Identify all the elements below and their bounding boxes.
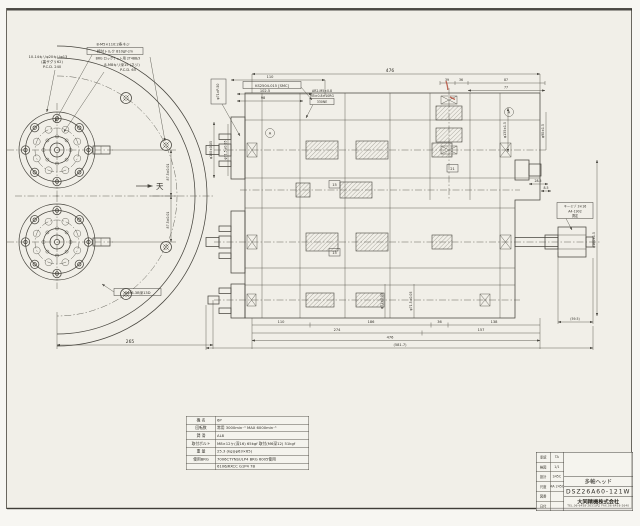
spec-label: 回転数 xyxy=(186,424,216,432)
field-value: MA 245C xyxy=(550,482,563,491)
note-pcd-line3: P.C.D. 240 xyxy=(43,65,62,69)
note-tap-line1: 8-M8キリ深15 (ネジ) xyxy=(104,62,140,67)
dim-overall-top: 476 xyxy=(386,68,395,74)
left-flange-view: 10-14キリφ20キリφ13 (裏ザグリ62) P.C.D. 240 8-M5… xyxy=(7,42,215,350)
field-value: S45C xyxy=(550,472,563,481)
engineering-drawing: .ln{fill:none;stroke:#47453e;stroke-widt… xyxy=(0,0,640,526)
dim-b1-36: 36 xyxy=(437,320,442,324)
spec-value: 常用 3000min⁻¹ MAX 6000min⁻¹ xyxy=(216,424,309,432)
dim-b4-581: (581.7) xyxy=(393,343,407,347)
field-label: 日付 xyxy=(537,501,551,510)
dim-b1-138: 138 xyxy=(491,320,499,324)
dim-77: 77 xyxy=(504,85,508,89)
title-block-fields: 承認TA 検図1/1 設計S45C 尺度MA 245C 図番 日付 xyxy=(537,453,565,511)
note-m6: 4-M6-3B深13D xyxy=(125,290,151,295)
table-row: 機 名6P xyxy=(186,416,309,424)
dim-phi160: φ160±1.5 xyxy=(592,232,596,248)
dim-phi180: φ180±0.05 xyxy=(209,141,213,159)
datum-a: A xyxy=(269,132,272,136)
dim-phi715: φ71.5±0.05 xyxy=(224,141,228,160)
field-label: 尺度 xyxy=(537,482,551,491)
note-grease-line1: AR2-M5×0.8 xyxy=(312,89,332,93)
table-row: 取付ボルトM8×12ヶ(深16) 65kgf 取付(M6深12) 51kgf xyxy=(186,440,309,448)
table-row: 回転数常用 3000min⁻¹ MAX 6000min⁻¹ xyxy=(186,424,309,432)
note-lock-line3: BRG ロックナット用 2T4BB/3 xyxy=(96,56,141,61)
spec-label xyxy=(186,463,216,470)
field-label: 検図 xyxy=(537,462,551,471)
note-grease-line2: M5×0.8×10RG xyxy=(310,94,334,98)
note-lock-line2: 締付トルク 810gf-cm xyxy=(97,49,134,54)
spec-label: 使用BRG xyxy=(186,455,216,463)
dim-b3-476: 476 xyxy=(387,335,395,339)
note-pcd-line2: (裏ザグリ62) xyxy=(41,59,63,64)
dim-110: 110 xyxy=(267,75,275,79)
drawing-number: DSZ26A60-121W xyxy=(564,487,633,498)
title-block: 承認TA 検図1/1 設計S45C 尺度MA 245C 図番 日付 多軸ヘッド … xyxy=(536,452,633,511)
field-value xyxy=(550,492,563,501)
red-pencil-mark xyxy=(446,81,455,100)
table-row: 重 量25.3 (kg)(φ63×65) xyxy=(186,448,309,456)
table-row: 潤 滑AL8 xyxy=(186,432,309,440)
gear-count-3: 15 xyxy=(332,251,337,255)
note-tap-line2: P.C.D. 65 xyxy=(120,68,136,72)
dim-phi135: φ135±1.5 xyxy=(503,122,507,138)
dim-b2-274: 274 xyxy=(334,328,342,332)
gear-clusters xyxy=(296,106,462,307)
product-name: 多軸ヘッド xyxy=(564,477,633,487)
company-tel: TEL.06-6458-2631(代) FAX.06-6458-2640 xyxy=(567,505,629,508)
field-value xyxy=(550,501,563,510)
dim-98: 98 xyxy=(261,96,266,100)
note-lock-line1: 8-M5×110:2条ネジ xyxy=(96,42,130,47)
field-label: 図番 xyxy=(537,492,551,501)
spec-value: 7006CTYNSULP4 BRG 6005使用 xyxy=(216,455,309,463)
gear-count-2: 21 xyxy=(450,167,455,171)
spec-label: 重 量 xyxy=(186,448,216,456)
spec-label: 潤 滑 xyxy=(186,432,216,440)
dim-595: (59.5) xyxy=(570,317,580,321)
dim-36: 36 xyxy=(459,78,463,82)
spec-value: 25.3 (kg)(φ63×65) xyxy=(216,448,309,456)
note-key-line3: 測定 xyxy=(572,213,579,218)
dim-b2-157: 157 xyxy=(478,328,485,332)
gear-count-1: 15 xyxy=(332,183,337,187)
dim-half-top: 87.5±0.01 xyxy=(166,164,170,181)
field-label: 設計 xyxy=(537,472,551,481)
dim-half-bottom: 87.5±0.01 xyxy=(166,212,170,229)
dim-285: 28.5 xyxy=(534,179,541,183)
dim-b1-186: 186 xyxy=(368,320,376,324)
dim-width: 265 xyxy=(126,339,135,345)
dim-85: 8.5 xyxy=(543,186,548,190)
spec-value: AL8 xyxy=(216,432,309,440)
bearings xyxy=(247,96,511,306)
spec-value: 6P xyxy=(216,416,309,424)
note-key-line2: A4-1902 xyxy=(568,209,581,213)
direction-label: 天 xyxy=(156,182,164,191)
spec-label: 機 名 xyxy=(186,416,216,424)
table-row: 6106JRXCC G1P4 7B xyxy=(186,463,309,470)
field-value: TA xyxy=(550,453,563,462)
dim-phi90: φ90±1.5 xyxy=(541,124,545,138)
dim-phi71b: φ71.5±0.05 xyxy=(409,292,413,311)
field-label: 承認 xyxy=(537,453,551,462)
spec-table: 機 名6P 回転数常用 3000min⁻¹ MAX 6000min⁻¹ 潤 滑A… xyxy=(186,416,309,470)
spec-label: 取付ボルト xyxy=(186,440,216,448)
spec-value: M8×12ヶ(深16) 65kgf 取付(M6深12) 51kgf xyxy=(216,440,309,448)
note-grease-line3: 330NE xyxy=(317,100,327,104)
section-view: 476 110 KS2504-015 [SMC] 102.5 98 φ71×P-… xyxy=(206,68,600,350)
table-row: 使用BRG7006CTYNSULP4 BRG 6005使用 xyxy=(186,455,309,463)
dim-b1-110: 110 xyxy=(278,320,286,324)
dim-1025: 102.5 xyxy=(260,89,270,93)
dim-87: 87 xyxy=(504,78,508,82)
label-boss: φ71×P-50 xyxy=(216,84,220,100)
dim-phi71a: φ71±0.05 xyxy=(380,293,384,309)
title-block-notes-cell xyxy=(564,453,633,478)
field-value: 1/1 xyxy=(550,462,563,471)
note-pcd-line1: 10-14キリφ20キリφ13 xyxy=(29,55,68,59)
spec-value: 6106JRXCC G1P4 7B xyxy=(216,463,309,470)
label-smc: KS2504-015 [SMC] xyxy=(255,84,289,88)
note-key-line1: キーミゾ 3×16 xyxy=(564,205,587,209)
